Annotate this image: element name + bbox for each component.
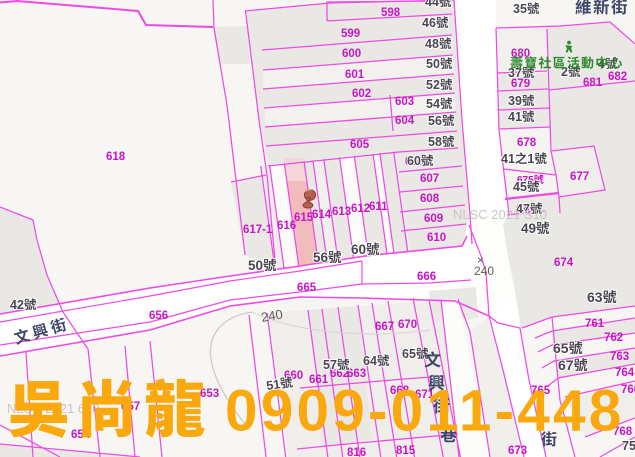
svg-text:617-1: 617-1: [243, 224, 273, 236]
svg-text:50: 50: [426, 57, 440, 71]
svg-text:65: 65: [402, 347, 416, 361]
svg-text:56: 56: [313, 250, 329, 265]
svg-text:50: 50: [248, 258, 263, 273]
svg-text:599: 599: [341, 28, 360, 40]
svg-text:600: 600: [342, 48, 361, 60]
svg-text:605: 605: [350, 139, 370, 151]
svg-text:604: 604: [395, 115, 415, 127]
svg-text:609: 609: [424, 213, 443, 225]
svg-text:60: 60: [407, 154, 421, 168]
svg-text:678: 678: [517, 137, 537, 149]
svg-text:674: 674: [554, 257, 574, 269]
svg-text:0909-011-448: 0909-011-448: [225, 379, 624, 444]
svg-text:682: 682: [608, 71, 627, 83]
svg-text:598: 598: [381, 7, 401, 19]
svg-text:52: 52: [426, 78, 440, 92]
svg-text:35: 35: [513, 2, 527, 16]
svg-text:665: 665: [297, 282, 317, 294]
svg-text:612: 612: [351, 203, 370, 215]
svg-text:65: 65: [553, 340, 569, 356]
svg-text:653: 653: [200, 388, 219, 400]
svg-text:67: 67: [558, 357, 574, 373]
svg-text:666: 666: [417, 271, 436, 283]
svg-text:677: 677: [570, 171, 589, 183]
svg-text:613: 613: [332, 206, 351, 218]
svg-text:49: 49: [521, 221, 536, 236]
svg-text:45: 45: [513, 180, 527, 194]
svg-text:1: 1: [527, 152, 534, 166]
svg-text:48: 48: [425, 37, 439, 51]
svg-text:762: 762: [604, 332, 623, 344]
svg-text:614: 614: [312, 209, 332, 221]
svg-text:601: 601: [345, 69, 365, 81]
svg-text:681: 681: [583, 77, 603, 89]
svg-text:611: 611: [369, 201, 388, 213]
svg-text:64: 64: [363, 354, 377, 368]
svg-text:41: 41: [508, 110, 522, 124]
svg-text:607: 607: [420, 173, 439, 185]
svg-text:60: 60: [351, 242, 366, 257]
svg-text:815: 815: [396, 445, 416, 457]
svg-text:240: 240: [474, 264, 494, 278]
svg-text:816: 816: [347, 447, 366, 457]
svg-text:602: 602: [352, 88, 371, 100]
svg-text:63: 63: [587, 289, 603, 305]
svg-text:667: 667: [375, 321, 394, 333]
svg-text:56: 56: [428, 114, 442, 128]
svg-text:603: 603: [395, 96, 414, 108]
svg-text:39: 39: [508, 94, 522, 108]
svg-text:NLSC 2021 S10: NLSC 2021 S10: [453, 207, 547, 222]
svg-text:46: 46: [422, 16, 436, 30]
svg-text:42: 42: [10, 298, 24, 312]
svg-text:764: 764: [615, 367, 635, 379]
svg-text:41: 41: [501, 152, 515, 166]
svg-text:44: 44: [425, 0, 439, 9]
svg-text:673: 673: [508, 445, 527, 457]
svg-text:618: 618: [106, 151, 126, 163]
svg-text:615: 615: [294, 212, 314, 224]
svg-text:608: 608: [420, 193, 440, 205]
svg-text:54: 54: [426, 97, 440, 111]
svg-text:761: 761: [585, 318, 605, 330]
svg-text:58: 58: [428, 135, 442, 149]
svg-text:610: 610: [427, 232, 446, 244]
svg-text:670: 670: [398, 319, 417, 331]
svg-text:763: 763: [610, 351, 629, 363]
svg-text:656: 656: [149, 310, 168, 322]
svg-text:57: 57: [323, 358, 337, 372]
